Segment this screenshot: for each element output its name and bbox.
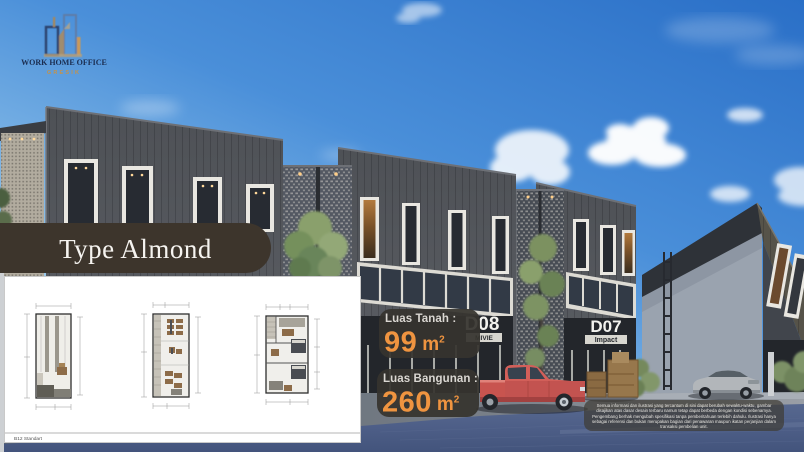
svg-text:Impact: Impact [595,337,618,344]
svg-text:D07: D07 [590,317,621,336]
svg-text:B12 Standart: B12 Standart [14,436,43,442]
